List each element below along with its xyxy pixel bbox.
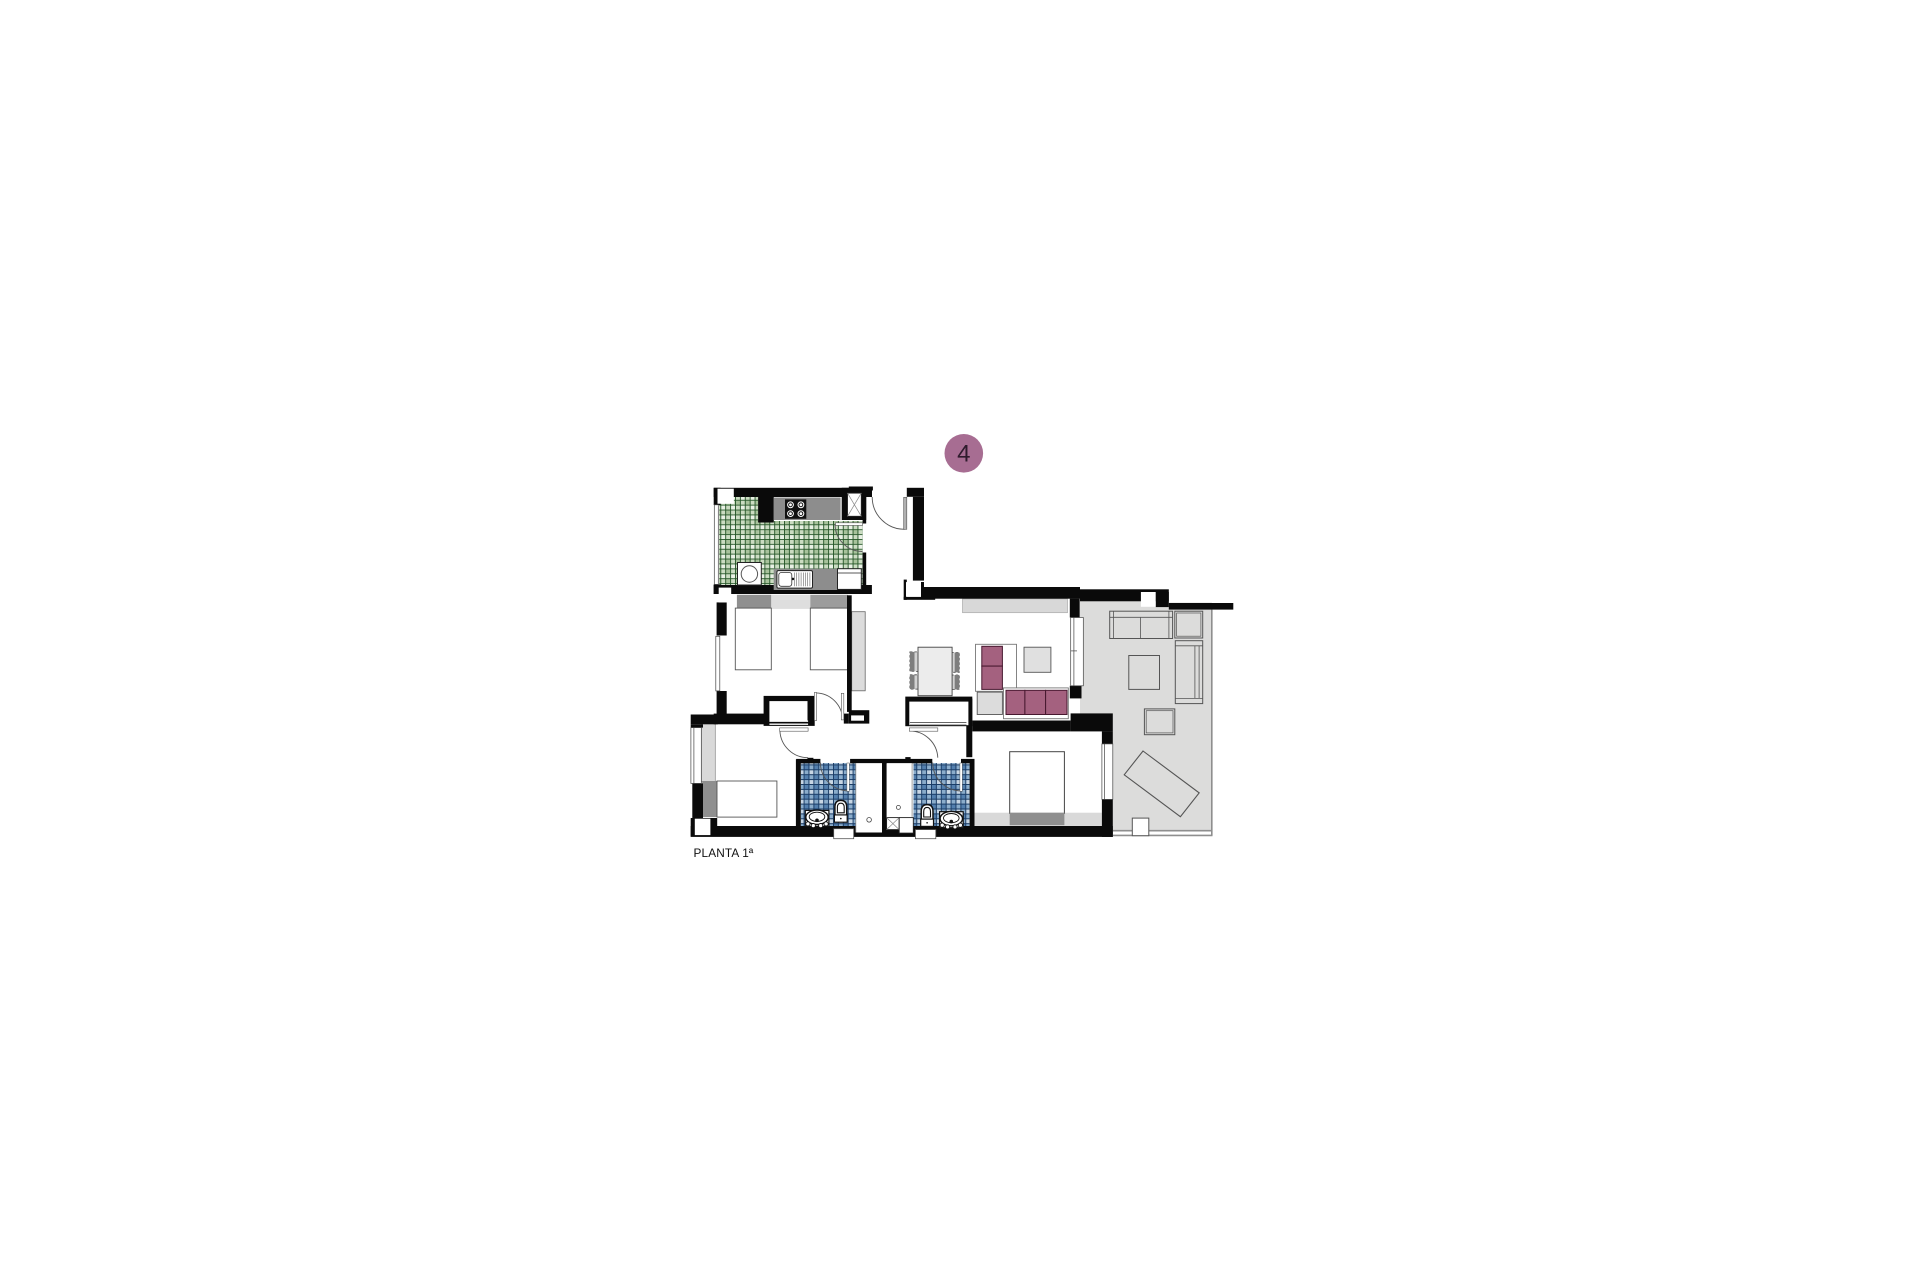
svg-text:PLANTA 1ª: PLANTA 1ª (694, 846, 754, 860)
svg-text:4: 4 (957, 441, 970, 468)
